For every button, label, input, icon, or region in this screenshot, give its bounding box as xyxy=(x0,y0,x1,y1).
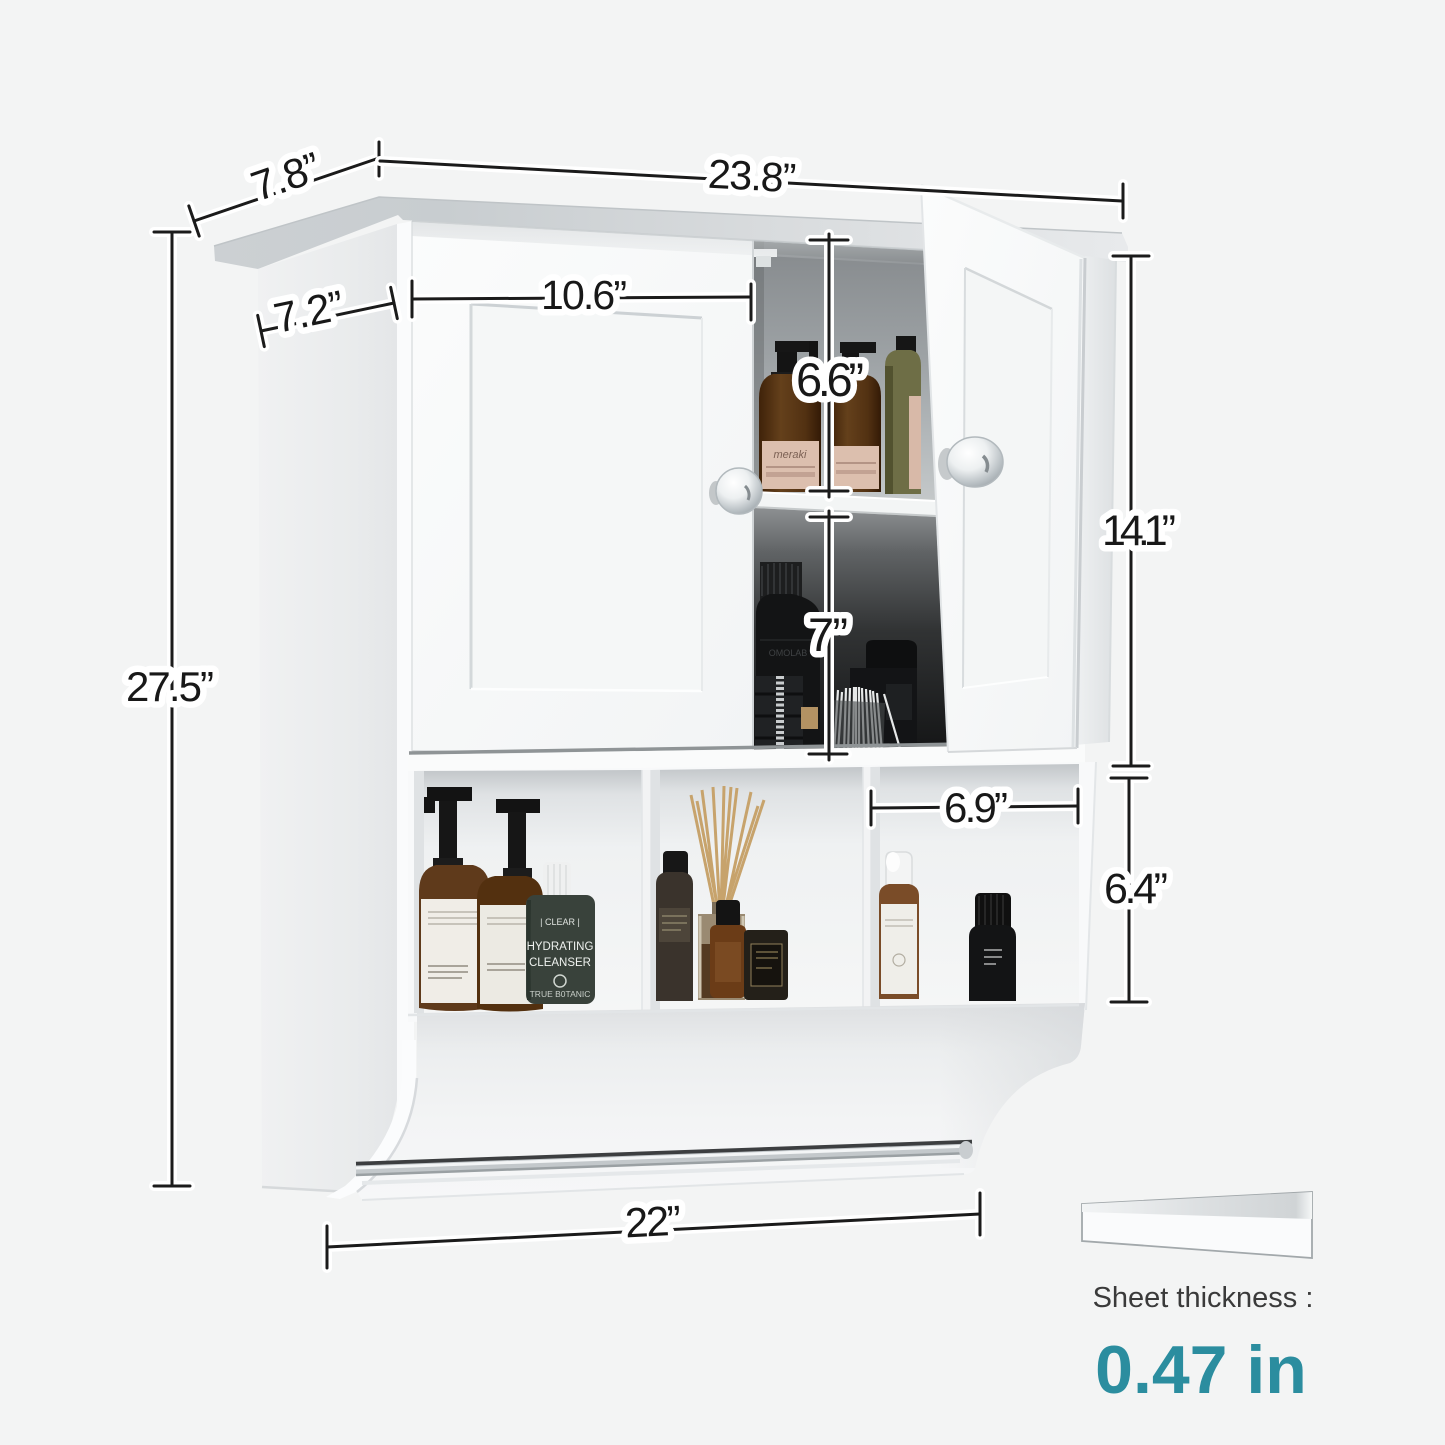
svg-text:6.9”: 6.9” xyxy=(944,784,1008,831)
svg-text:7”: 7” xyxy=(808,608,848,661)
svg-text:OMOLAB: OMOLAB xyxy=(769,648,808,658)
svg-text:Sheet thickness :: Sheet thickness : xyxy=(1093,1282,1314,1314)
svg-text:meraki: meraki xyxy=(773,449,807,461)
svg-text:HYDRATING: HYDRATING xyxy=(527,941,594,953)
svg-text:| CLEAR |: | CLEAR | xyxy=(540,917,580,927)
svg-text:14.1”: 14.1” xyxy=(1102,507,1176,555)
svg-text:0.47 in: 0.47 in xyxy=(1095,1332,1307,1408)
svg-text:TRUE B0TANIC: TRUE B0TANIC xyxy=(530,989,591,999)
svg-text:22”: 22” xyxy=(624,1197,682,1247)
svg-text:10.6”: 10.6” xyxy=(541,272,627,318)
svg-text:6.4”: 6.4” xyxy=(1104,865,1168,913)
svg-text:27.5”: 27.5” xyxy=(126,663,214,710)
svg-text:23.8”: 23.8” xyxy=(707,151,797,202)
svg-text:6.6”: 6.6” xyxy=(796,353,864,406)
svg-text:CLEANSER: CLEANSER xyxy=(529,957,591,969)
